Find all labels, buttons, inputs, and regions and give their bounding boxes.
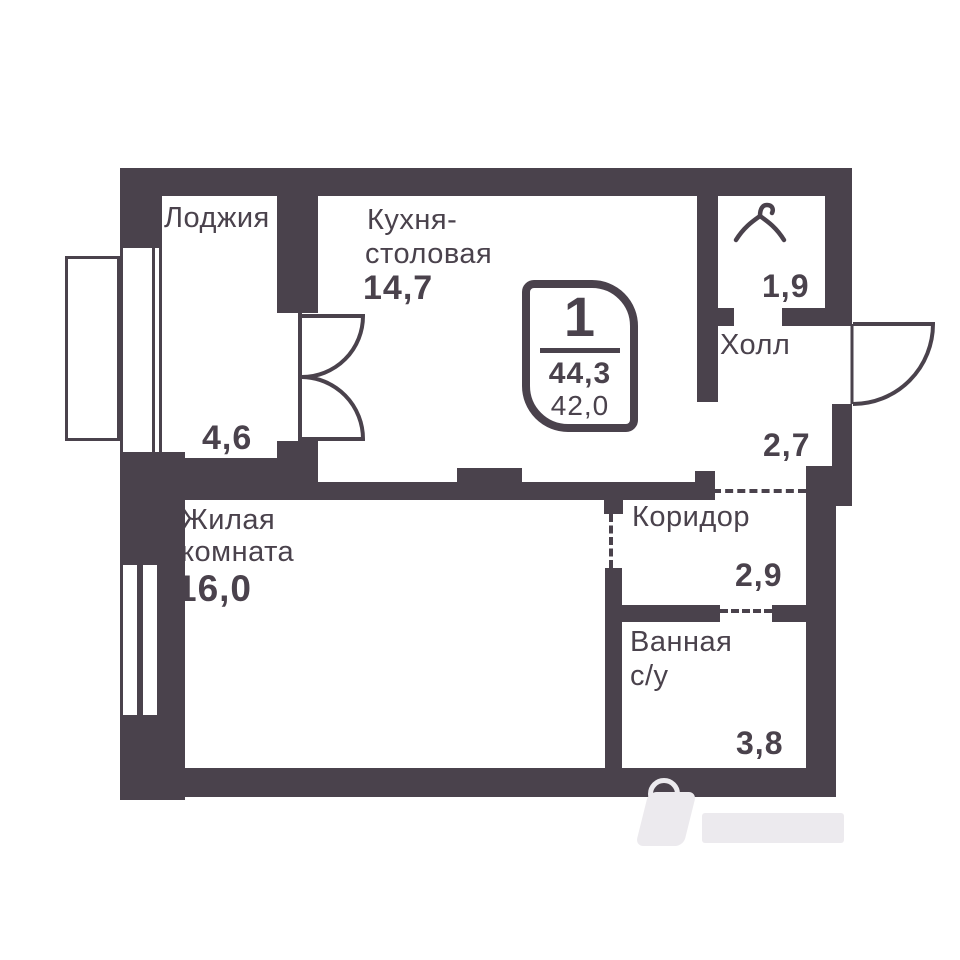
wardrobe-area: 1,9: [762, 268, 809, 305]
kitchen-label-line2: столовая: [365, 239, 492, 271]
bathroom-label-line2: с/у: [630, 661, 669, 693]
apartment-badge: 1 44,3 42,0: [522, 280, 638, 432]
living-area: 16,0: [176, 568, 252, 610]
watermark-text-block: [702, 813, 844, 843]
floor-plan: 1 44,3 42,0 Лоджия 4,6 Кухня- столовая 1…: [0, 0, 960, 960]
badge-rooms-count: 1: [564, 288, 596, 345]
bathroom-area: 3,8: [736, 725, 783, 762]
hanger-icon: [736, 205, 784, 240]
living-label-line2: комната: [181, 537, 294, 569]
entrance-door-icon: [852, 324, 933, 404]
french-door-icon: [302, 316, 363, 439]
bathroom-label-line1: Ванная: [630, 627, 732, 659]
badge-divider: [540, 348, 620, 353]
badge-total-area: 44,3: [549, 358, 611, 390]
hall-area: 2,7: [763, 427, 810, 464]
living-label-line1: Жилая: [181, 505, 275, 537]
loggia-area: 4,6: [202, 419, 252, 458]
badge-living-area: 42,0: [551, 390, 610, 422]
loggia-label: Лоджия: [164, 203, 270, 235]
corridor-area: 2,9: [735, 557, 782, 594]
kitchen-label-line1: Кухня-: [367, 205, 457, 237]
kitchen-area: 14,7: [363, 269, 433, 308]
corridor-label: Коридор: [632, 502, 750, 534]
hall-label: Холл: [720, 330, 790, 362]
